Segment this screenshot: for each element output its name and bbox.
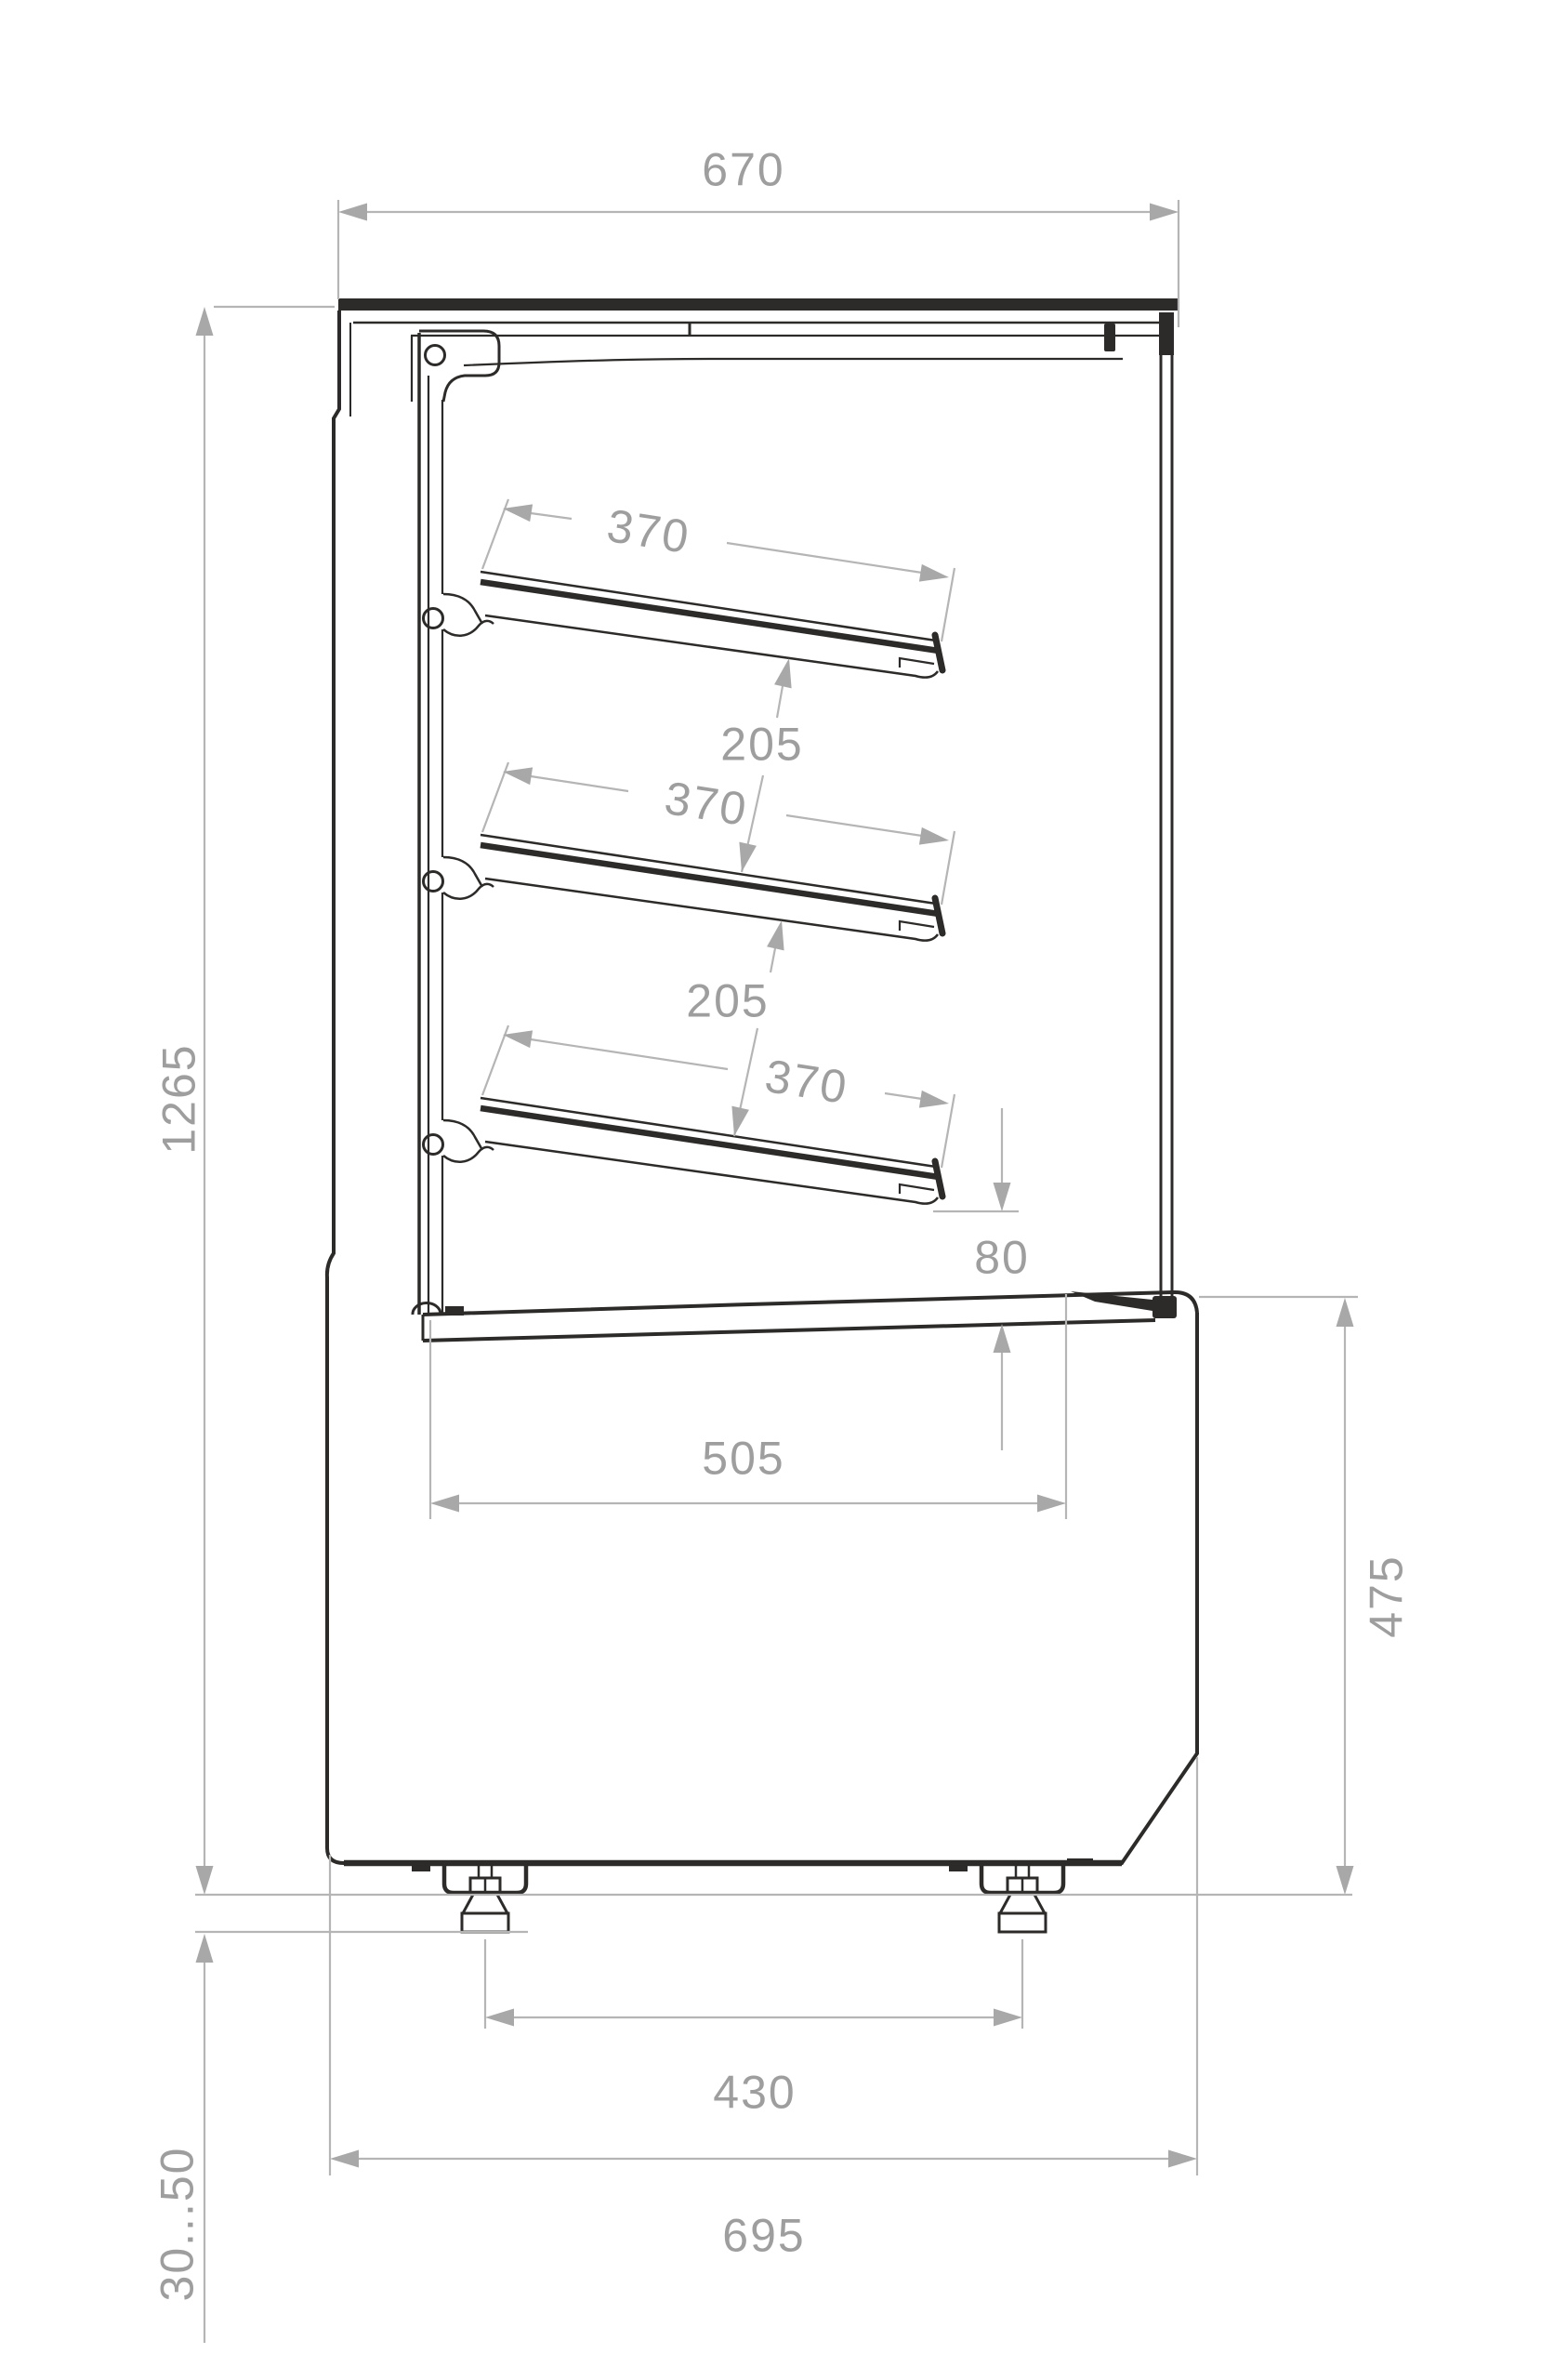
dim-label-base-depth: 695 [722,2210,805,2262]
dim-label-shelf-pitch: 205 [686,975,769,1027]
dim-base-depth: 695 [330,1757,1197,2262]
technical-drawing-page: 670 1265 370 205 370 205 [0,0,1541,2380]
bracket-hole-icon [424,872,443,892]
bracket-hole-icon [426,346,445,365]
dim-label-foot-adjust: 30...50 [151,2147,204,2302]
dim-label-shelf-depth: 370 [661,772,751,836]
dim-label-overall-height: 1265 [153,1043,205,1154]
glass-bottom-holder [1152,1296,1177,1318]
dim-foot-pitch: 430 [485,1939,1022,2119]
dim-label-base-height: 475 [1361,1554,1413,1637]
dim-label-shelf-depth: 370 [761,1050,851,1114]
adjustable-foot-left [444,1863,526,1932]
deck [413,1292,1197,1341]
dim-label-overall-width: 670 [702,144,784,196]
front-glass [1071,327,1177,1318]
dim-shelf-pitch-2: 205 [686,919,790,1138]
deck-clip [445,1306,464,1316]
shelf-middle [443,835,942,941]
display-case-side-section: 670 1265 370 205 370 205 [0,0,1541,2380]
adjustable-foot-right [981,1863,1063,1932]
dim-base-height: 475 [1199,1297,1413,1895]
base-tab [412,1863,430,1871]
base-tab [949,1863,968,1871]
ceiling-panel [353,323,1159,402]
dim-overall-height: 1265 [153,307,336,1895]
bracket-hole-icon [424,1135,443,1155]
dim-label-shelf-pitch: 205 [720,719,803,771]
shelf-support-column [419,331,499,1315]
dim-label-shelf-depth: 370 [603,499,693,563]
dim-label-deck-gap: 80 [974,1232,1030,1284]
dim-deck-depth: 505 [430,1294,1066,1519]
lamp-icon [1104,324,1115,351]
shelf-bottom [443,1098,942,1204]
top-bracket [419,331,499,402]
cabinet-structure [327,298,1197,1932]
dim-label-deck-depth: 505 [702,1433,784,1485]
canopy [338,298,1179,311]
dim-foot-adjust: 30...50 [151,1934,214,2343]
dim-label-foot-pitch: 430 [713,2067,796,2119]
bracket-hole-icon [424,609,443,628]
base-tab [1067,1858,1093,1866]
dim-deck-gap: 80 [933,1108,1030,1450]
rear-wall-and-base [327,311,1197,1863]
shelf-top [443,572,942,678]
dim-shelf-pitch-1: 205 [720,656,803,874]
